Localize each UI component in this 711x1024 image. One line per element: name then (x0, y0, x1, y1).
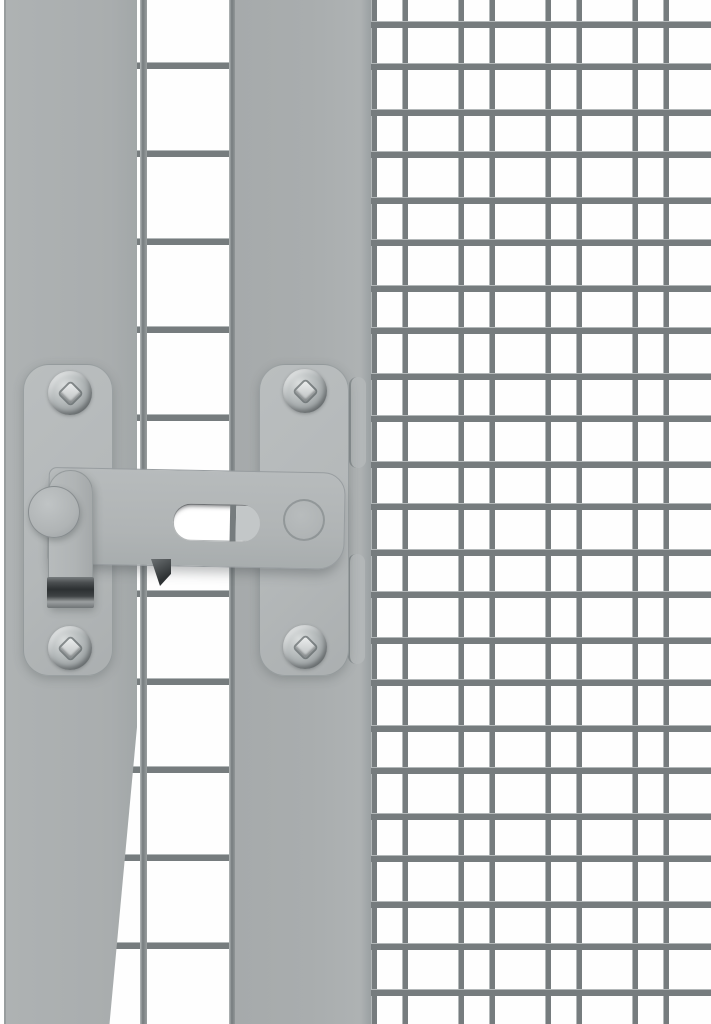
screw (48, 626, 92, 670)
screw-recess (59, 382, 80, 403)
strike-edge-tab (349, 377, 366, 468)
screw (283, 369, 327, 413)
screw (48, 371, 92, 415)
slot-pin (236, 506, 261, 541)
fine-mesh-panel (368, 0, 711, 1024)
latch-pivot-knob (28, 486, 80, 538)
screw-recess (294, 636, 315, 657)
product-photo-gate-latch (0, 0, 711, 1024)
latch-bar-slot (173, 503, 261, 542)
screw-recess (59, 637, 80, 658)
strike-edge-tab (348, 554, 365, 664)
latch-catch-clip (47, 577, 94, 608)
screw (283, 625, 327, 669)
bar-pivot-circle (283, 499, 325, 541)
screw-recess (294, 380, 315, 401)
